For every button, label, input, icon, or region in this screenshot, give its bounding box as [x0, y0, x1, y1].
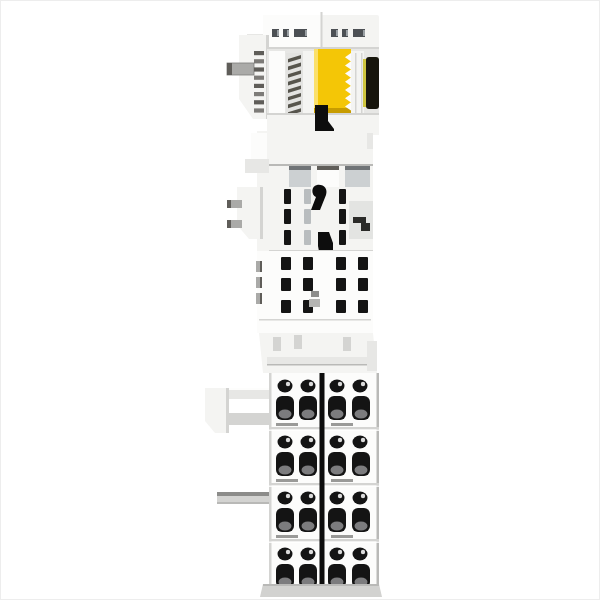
cap-right-half — [321, 15, 379, 49]
terminal-small-hole — [353, 492, 368, 505]
terminal-large-hole-reflection — [302, 522, 315, 531]
terminal-small-hole-gleam — [309, 494, 313, 498]
cap-slot-highlight — [336, 30, 338, 36]
terminal-small-hole — [301, 436, 316, 449]
terminal-large-hole-reflection — [355, 522, 368, 531]
mid-slot — [339, 189, 346, 204]
mid-slot — [284, 209, 291, 224]
wing-tooth — [254, 84, 264, 88]
vent-hole — [336, 257, 346, 270]
recess-c-edge — [345, 166, 370, 170]
upper-body — [227, 35, 379, 146]
vent-hole — [303, 257, 313, 270]
yellow-component — [314, 49, 351, 113]
terminal-large-hole-reflection — [302, 466, 315, 475]
terminal-small-hole-gleam — [338, 382, 342, 386]
vent-hole — [358, 257, 368, 270]
wing-tooth — [254, 76, 264, 80]
wing-tooth — [254, 51, 264, 55]
lower-pin-dark — [217, 492, 269, 496]
cap-slot-highlight — [363, 30, 365, 36]
terminal-small-hole-gleam — [286, 382, 290, 386]
terminal-small-hole-gleam — [309, 382, 313, 386]
terminal-large-hole-reflection — [331, 522, 344, 531]
panel-notch-3 — [343, 337, 351, 351]
panel-notch-2 — [294, 335, 302, 349]
recess-b-edge — [317, 166, 339, 170]
terminal-large-hole-reflection — [279, 522, 292, 531]
terminal-large-hole-reflection — [331, 410, 344, 419]
cap-slot-highlight — [277, 30, 279, 36]
mid-left-step-1 — [251, 133, 267, 159]
terminal-large-hole-reflection — [355, 410, 368, 419]
vent-hole — [281, 257, 291, 270]
grid-metal-bit-edge — [260, 293, 262, 304]
terminal-small-hole — [301, 492, 316, 505]
latch-lower-arm — [229, 413, 269, 425]
terminal-module-photo — [1, 1, 600, 600]
terminal-small-hole-gleam — [338, 550, 342, 554]
terminal-small-hole-gleam — [286, 550, 290, 554]
wing-tooth — [254, 108, 264, 112]
cap-slot-highlight — [305, 30, 307, 36]
bus-contact-strip — [366, 57, 379, 109]
yellow-highlight — [314, 49, 318, 113]
tab-shadow — [260, 187, 263, 239]
terminal-small-hole — [353, 548, 368, 561]
wing-tooth — [254, 67, 264, 71]
latch-body-shadow — [226, 388, 229, 433]
vent-hole — [358, 278, 368, 291]
terminal-small-hole-gleam — [361, 382, 365, 386]
mid-slot — [304, 209, 311, 224]
base-topline — [263, 584, 379, 586]
vent-grid-section — [256, 251, 373, 333]
center-divider — [320, 373, 325, 587]
latch-body — [205, 388, 229, 433]
vent-hole — [336, 278, 346, 291]
yellow-block — [314, 49, 351, 113]
vent-hole — [336, 300, 346, 313]
vent-hole — [281, 300, 291, 313]
panel-ledge — [267, 357, 373, 365]
photo-canvas — [0, 0, 600, 600]
cap-slot-highlight — [346, 30, 348, 36]
mid-slot — [304, 189, 311, 204]
terminal-small-hole — [330, 548, 345, 561]
terminal-foot-mark — [331, 479, 353, 482]
grid-grey-mark-2 — [309, 299, 320, 307]
mid-left-step-2 — [245, 159, 269, 173]
grid-metal-bit-edge — [260, 261, 262, 272]
rail-seam-2 — [361, 53, 363, 117]
terminal-small-hole — [353, 436, 368, 449]
terminal-foot-mark — [276, 479, 298, 482]
terminal-block — [205, 373, 382, 597]
panel-ledge-line — [267, 364, 373, 366]
terminal-foot-mark — [331, 535, 353, 538]
terminal-small-hole — [330, 380, 345, 393]
right-recess-mark-1 — [353, 217, 366, 223]
terminal-left-edge — [269, 373, 272, 585]
terminal-foot-mark — [276, 423, 298, 426]
panel-notch-1 — [273, 337, 281, 351]
terminal-small-hole-gleam — [361, 550, 365, 554]
terminal-large-hole-reflection — [279, 466, 292, 475]
mid-right-step — [367, 133, 373, 149]
terminal-small-hole — [330, 436, 345, 449]
inner-rail-mid — [303, 51, 315, 121]
grid-bottom-seam — [259, 319, 371, 321]
mounting-latch — [205, 388, 269, 433]
tab-pin-upper-tip — [227, 200, 231, 208]
cap-slot-highlight — [287, 30, 289, 36]
lower-pin-edge — [217, 502, 269, 504]
grid-grey-mark-1 — [311, 291, 319, 297]
terminal-foot-mark — [276, 535, 298, 538]
mid-slot — [284, 189, 291, 204]
smooth-panel — [259, 333, 377, 373]
cap-center-seam — [321, 12, 323, 49]
tab-pin-lower-tip — [227, 220, 231, 228]
vent-hole — [281, 278, 291, 291]
terminal-small-hole-gleam — [361, 494, 365, 498]
mid-slot — [339, 209, 346, 224]
terminal-small-hole-gleam — [338, 438, 342, 442]
right-recess-mark-2 — [361, 223, 370, 231]
terminal-small-hole-gleam — [361, 438, 365, 442]
mid-left-tab — [237, 187, 263, 239]
mid-slot — [284, 230, 291, 245]
terminal-foot-mark — [331, 423, 353, 426]
terminal-small-hole-gleam — [338, 494, 342, 498]
wing-tooth — [254, 92, 264, 96]
terminal-small-hole — [353, 380, 368, 393]
mid-body — [227, 131, 373, 257]
grid-metal-bits — [256, 261, 262, 304]
terminal-small-hole — [278, 548, 293, 561]
wing-tooth — [254, 59, 264, 63]
terminal-small-hole — [301, 548, 316, 561]
vent-hole — [303, 278, 313, 291]
mid-slot — [304, 230, 311, 245]
terminal-small-hole-gleam — [286, 438, 290, 442]
terminal-small-hole-gleam — [309, 550, 313, 554]
terminal-large-hole-reflection — [355, 466, 368, 475]
cap-left-half — [263, 11, 321, 49]
inner-rail-left — [269, 51, 285, 121]
rail-seam-1 — [355, 53, 357, 117]
recess-row-topline — [269, 164, 373, 166]
terminal-small-hole — [278, 492, 293, 505]
terminal-small-hole — [301, 380, 316, 393]
terminal-small-hole-gleam — [309, 438, 313, 442]
mid-slot — [339, 230, 346, 245]
lower-pin — [217, 492, 269, 504]
recess-a-edge — [289, 166, 311, 170]
terminal-small-hole-gleam — [286, 494, 290, 498]
terminal-small-hole — [330, 492, 345, 505]
terminal-right-edge — [377, 373, 380, 585]
terminal-large-hole-reflection — [302, 410, 315, 419]
terminal-large-hole-reflection — [331, 466, 344, 475]
upper-pin-tip — [227, 63, 232, 75]
terminal-large-hole-reflection — [279, 410, 292, 419]
terminal-small-hole — [278, 436, 293, 449]
vent-hole — [358, 300, 368, 313]
wing-tooth — [254, 100, 264, 104]
terminal-small-hole — [278, 380, 293, 393]
panel-right-step — [367, 341, 377, 371]
grid-metal-bit-edge — [260, 277, 262, 288]
